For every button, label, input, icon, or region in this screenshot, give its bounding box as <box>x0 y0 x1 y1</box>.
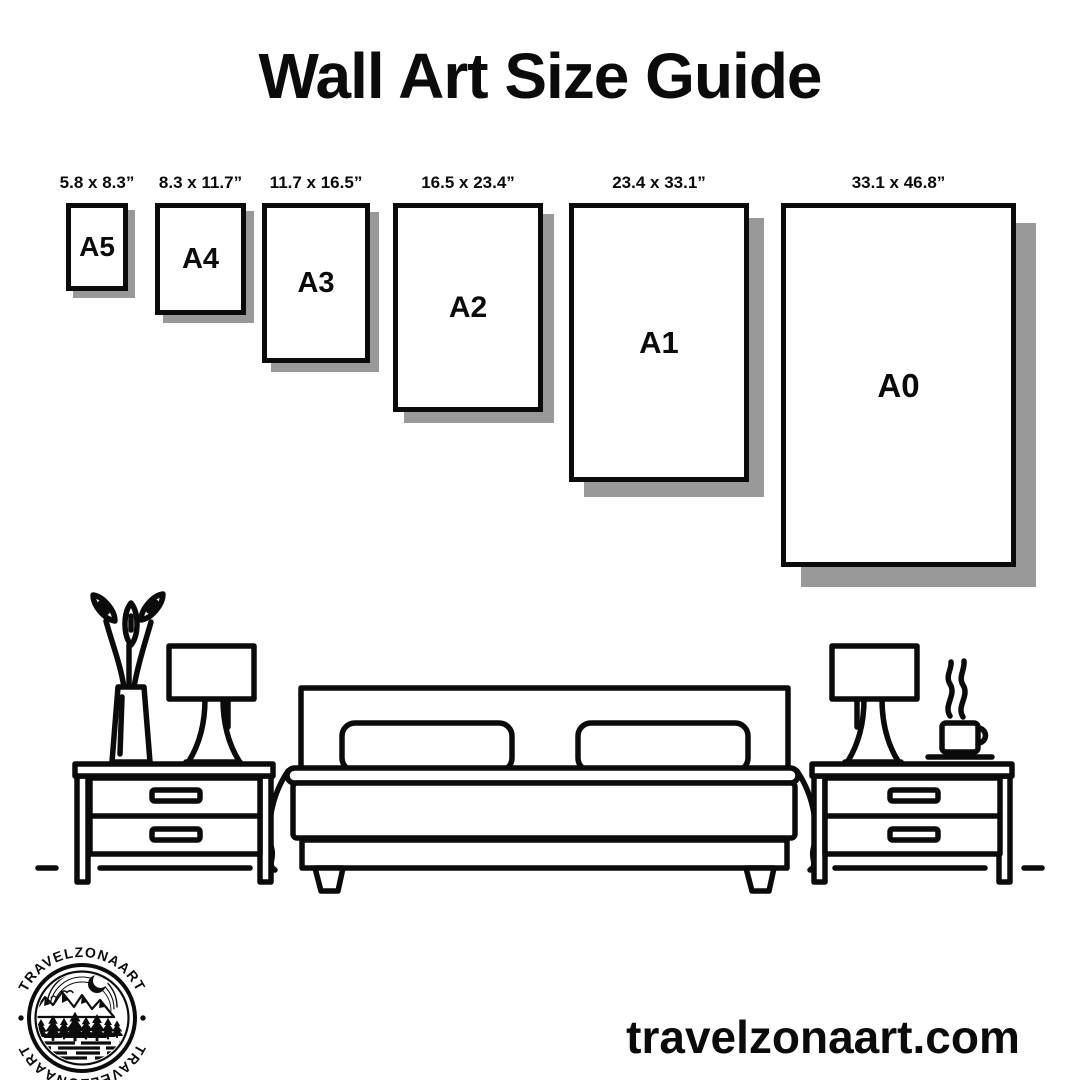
lamp-stem <box>189 699 205 761</box>
drawer-handle <box>152 829 200 840</box>
page-title: Wall Art Size Guide <box>259 44 822 108</box>
paper-size-code: A2 <box>449 293 487 323</box>
paper-box-a5: A5 <box>66 203 128 291</box>
bedroom-illustration <box>0 588 1080 900</box>
paper-box-a4: A4 <box>155 203 246 315</box>
bed-leg-left <box>315 868 343 891</box>
bed-pillow-left <box>342 723 512 771</box>
moon-icon <box>88 973 108 993</box>
paper-box-a3: A3 <box>262 203 370 363</box>
paper-box-a1: A1 <box>569 203 749 482</box>
lamp-stem <box>882 699 898 761</box>
table-lamp-left <box>169 646 254 762</box>
table-lamp-right <box>832 646 917 762</box>
size-dimensions-label: 8.3 x 11.7” <box>159 173 242 193</box>
bed <box>270 688 816 891</box>
bed-duvet <box>293 783 795 838</box>
drawer-handle <box>890 790 938 801</box>
lamp-shade <box>832 646 917 699</box>
paper-size-code: A1 <box>639 327 679 358</box>
lamp-shade <box>169 646 254 699</box>
size-dimensions-label: 11.7 x 16.5” <box>270 173 363 193</box>
drawer-handle <box>152 790 200 801</box>
vase-highlight <box>120 697 122 754</box>
steam-line <box>948 662 952 716</box>
plant-leaf-right <box>137 591 167 624</box>
logo-separator-dot-left <box>18 1015 23 1020</box>
size-dimensions-label: 33.1 x 46.8” <box>852 173 946 193</box>
brand-logo: TRAVELZONAART TRAVELZONAART <box>1 937 163 1080</box>
paper-box-a2: A2 <box>393 203 543 412</box>
paper-size-code: A3 <box>297 269 334 298</box>
bed-base <box>302 840 787 868</box>
lamp-stem <box>223 699 239 761</box>
plant-stem <box>106 621 124 687</box>
nightstand-right <box>812 764 1012 882</box>
paper-box-a0: A0 <box>781 203 1016 567</box>
paper-size-code: A5 <box>79 233 115 261</box>
nightstand-left <box>75 764 273 882</box>
cup-body <box>942 723 978 752</box>
nightstand-left-leg-a <box>77 776 88 882</box>
paper-size-code: A4 <box>182 245 219 274</box>
size-dimensions-label: 16.5 x 23.4” <box>421 173 515 193</box>
size-dimensions-label: 5.8 x 8.3” <box>60 173 135 193</box>
wall-art-size-guide-poster: Wall Art Size Guide 5.8 x 8.3”A58.3 x 11… <box>0 0 1080 1080</box>
coffee-cup <box>928 661 992 757</box>
website-url: travelzonaart.com <box>626 1012 1020 1062</box>
bed-leg-right <box>746 868 774 891</box>
logo-separator-dot-right <box>140 1015 145 1020</box>
bed-pillow-right <box>578 723 748 771</box>
nightstand-right-top <box>812 764 1012 776</box>
logo-arc-text-top: TRAVELZONAART <box>15 944 149 994</box>
mountains <box>31 992 114 1017</box>
steam-line <box>961 661 965 717</box>
plant-vase <box>89 591 167 762</box>
size-dimensions-label: 23.4 x 33.1” <box>612 173 706 193</box>
drawer-handle <box>890 829 938 840</box>
paper-size-code: A0 <box>877 369 919 402</box>
nightstand-left-top <box>75 764 273 776</box>
plant-leaf-center <box>125 603 137 645</box>
